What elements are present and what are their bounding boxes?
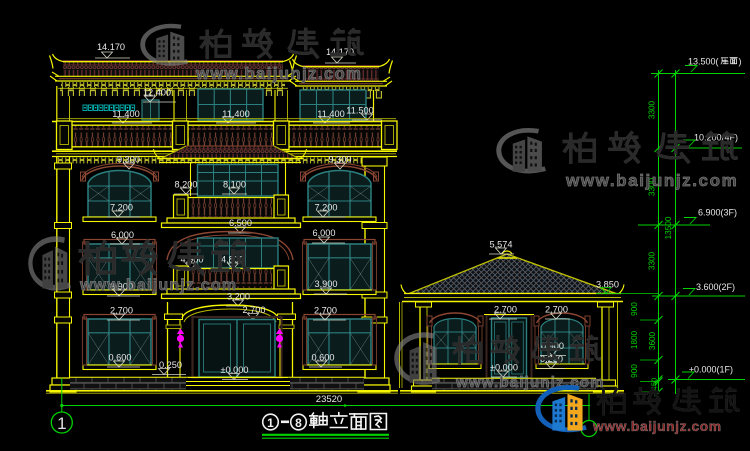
svg-text:6.000: 6.000 [111,230,134,240]
svg-text:3.900: 3.900 [315,279,338,289]
svg-text:3.600(2F): 3.600(2F) [696,282,735,292]
svg-text:www.baijunjz.com: www.baijunjz.com [592,419,722,434]
svg-text:1: 1 [267,416,274,430]
svg-text:11.400: 11.400 [317,109,344,119]
svg-text:3300: 3300 [648,100,657,119]
svg-text:3300: 3300 [648,251,657,270]
svg-text:±0.000(1F): ±0.000(1F) [689,365,733,375]
svg-text:www.baijunjz.com: www.baijunjz.com [565,171,738,190]
svg-text:): ) [739,57,742,67]
svg-text:6.500: 6.500 [229,218,252,228]
svg-text:1: 1 [57,414,66,433]
svg-text:3.850: 3.850 [596,280,619,290]
svg-text:11.400: 11.400 [222,109,249,119]
svg-text:6.000: 6.000 [313,228,336,238]
svg-text:11.400: 11.400 [112,109,139,119]
svg-text:14.170: 14.170 [97,42,125,52]
svg-text:13500: 13500 [664,216,673,239]
svg-text:13.500(: 13.500( [688,57,719,67]
svg-text:6.900(3F): 6.900(3F) [698,208,737,218]
svg-text:www.baijunjz.com: www.baijunjz.com [455,374,605,391]
svg-text:23520: 23520 [316,394,342,405]
svg-text:www.baijunjz.com: www.baijunjz.com [79,277,237,294]
svg-text:3600: 3600 [648,331,657,350]
svg-text:www.baijunjz.com: www.baijunjz.com [195,65,362,83]
svg-text:900: 900 [630,364,639,378]
svg-text:900: 900 [630,302,639,316]
svg-text:8: 8 [295,416,302,430]
svg-text:1800: 1800 [630,330,639,349]
